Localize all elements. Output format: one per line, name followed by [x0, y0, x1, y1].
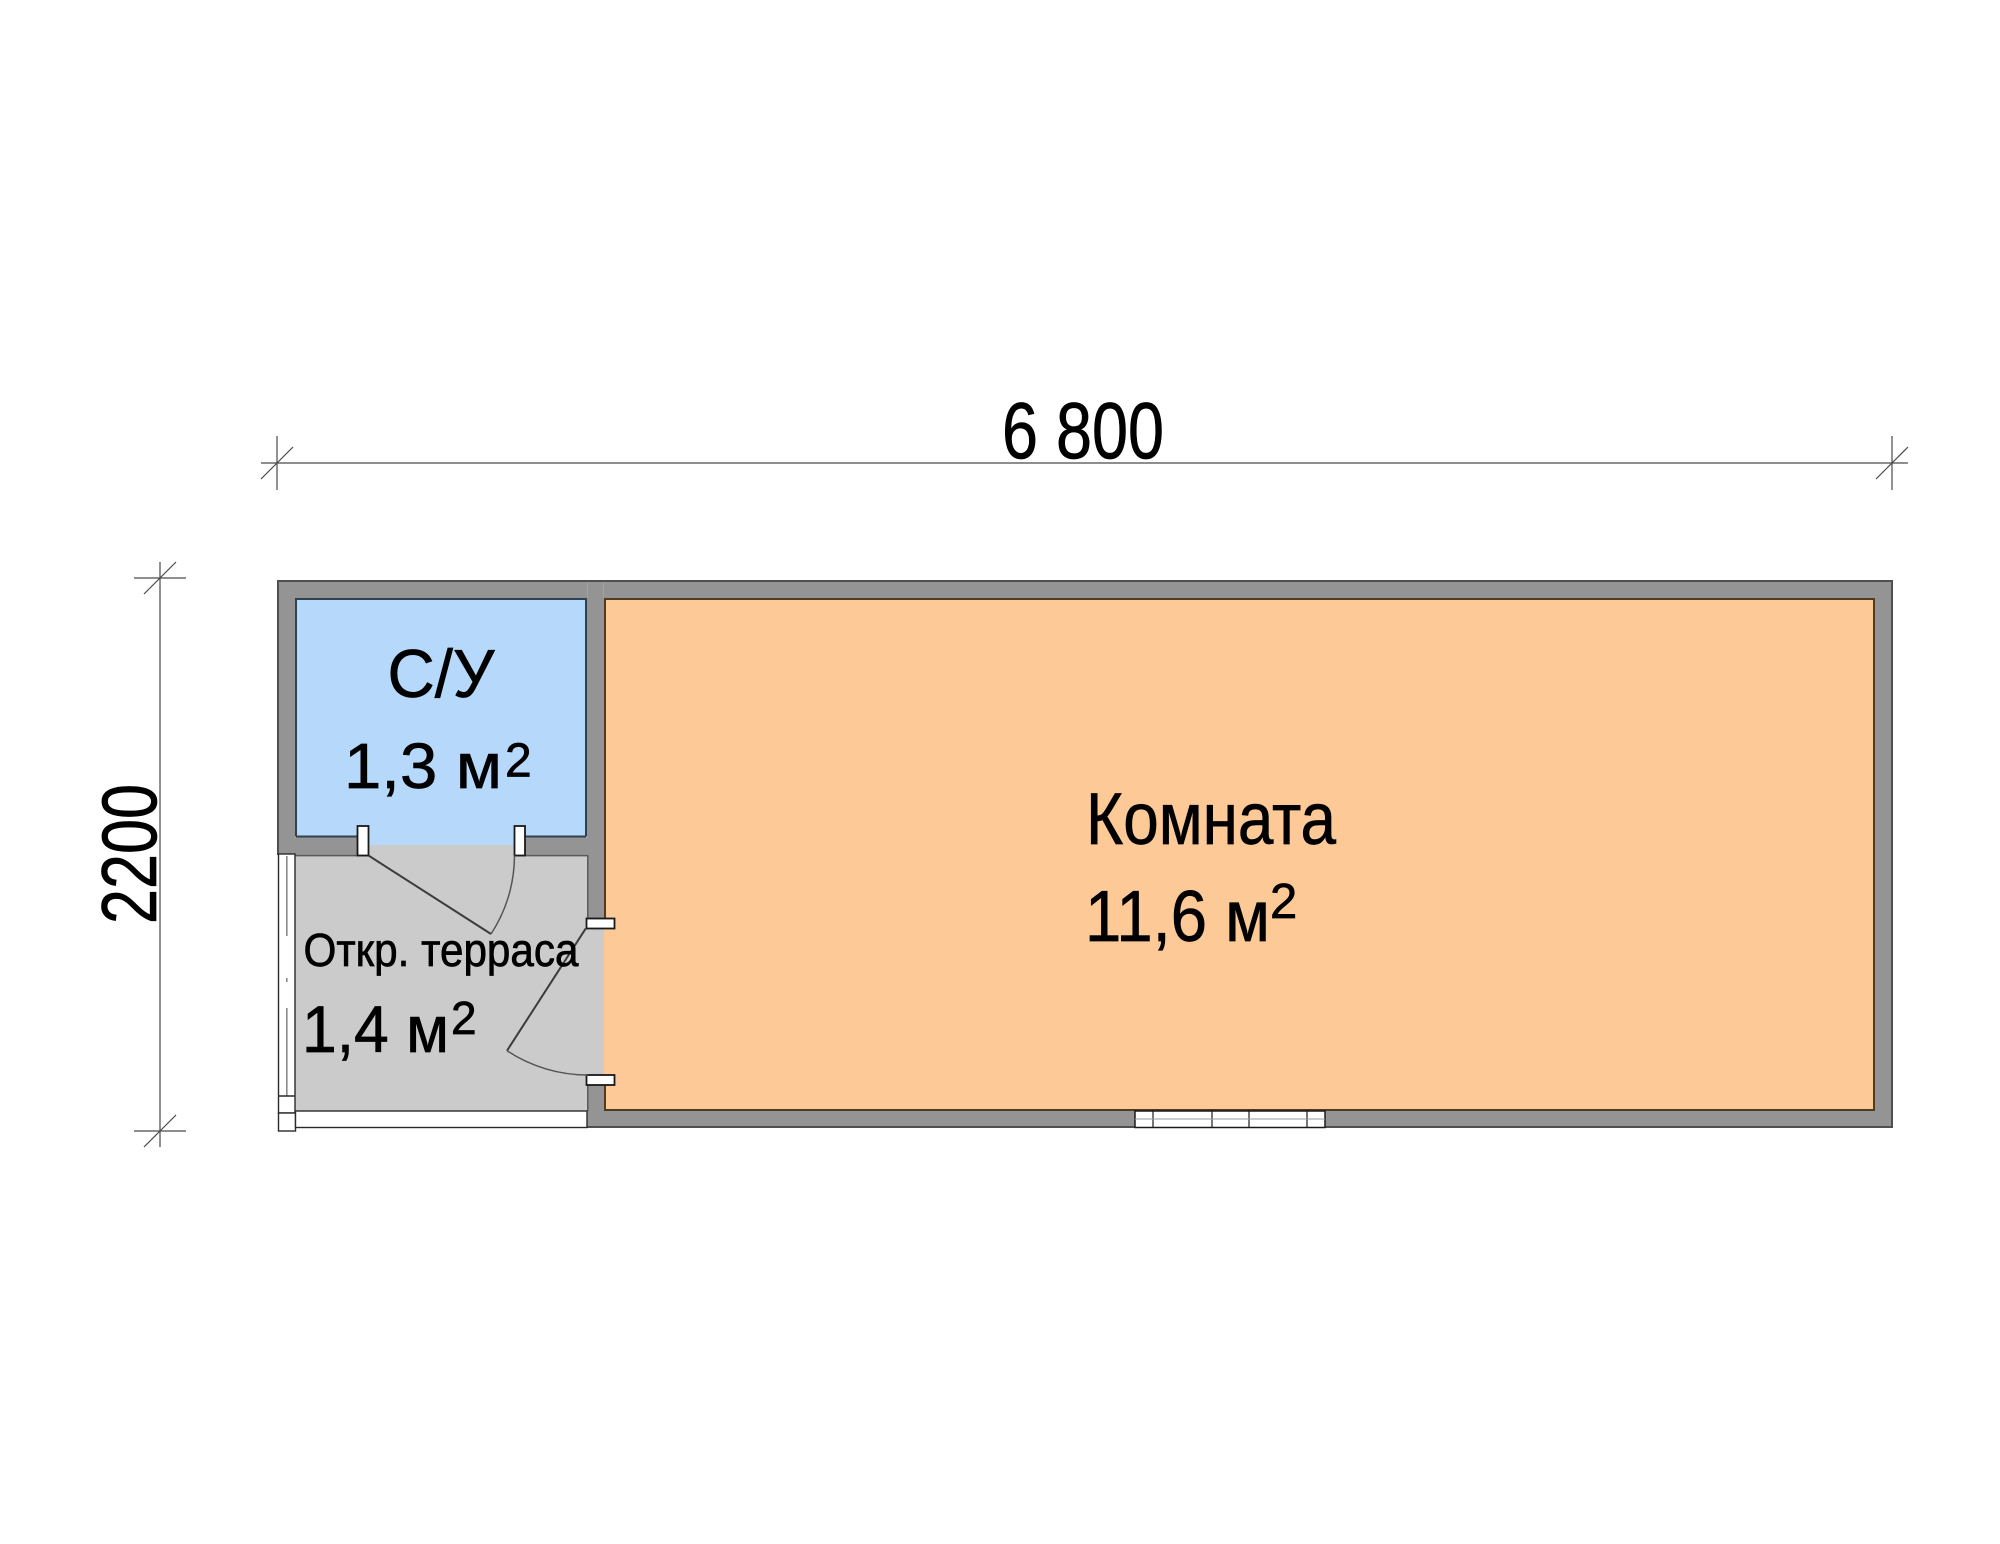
svg-text:1,3 м: 1,3 м [344, 730, 502, 802]
svg-text:2: 2 [1270, 875, 1297, 929]
svg-text:С/У: С/У [388, 636, 496, 712]
svg-text:2: 2 [505, 735, 532, 788]
svg-text:Откр. терраса: Откр. терраса [304, 924, 579, 976]
svg-text:11,6 м: 11,6 м [1085, 877, 1270, 957]
svg-text:1,4 м: 1,4 м [302, 992, 449, 1066]
svg-text:2200: 2200 [85, 784, 173, 924]
svg-text:6 800: 6 800 [1002, 386, 1164, 475]
svg-text:Комната: Комната [1086, 779, 1336, 860]
svg-text:2: 2 [451, 992, 477, 1044]
